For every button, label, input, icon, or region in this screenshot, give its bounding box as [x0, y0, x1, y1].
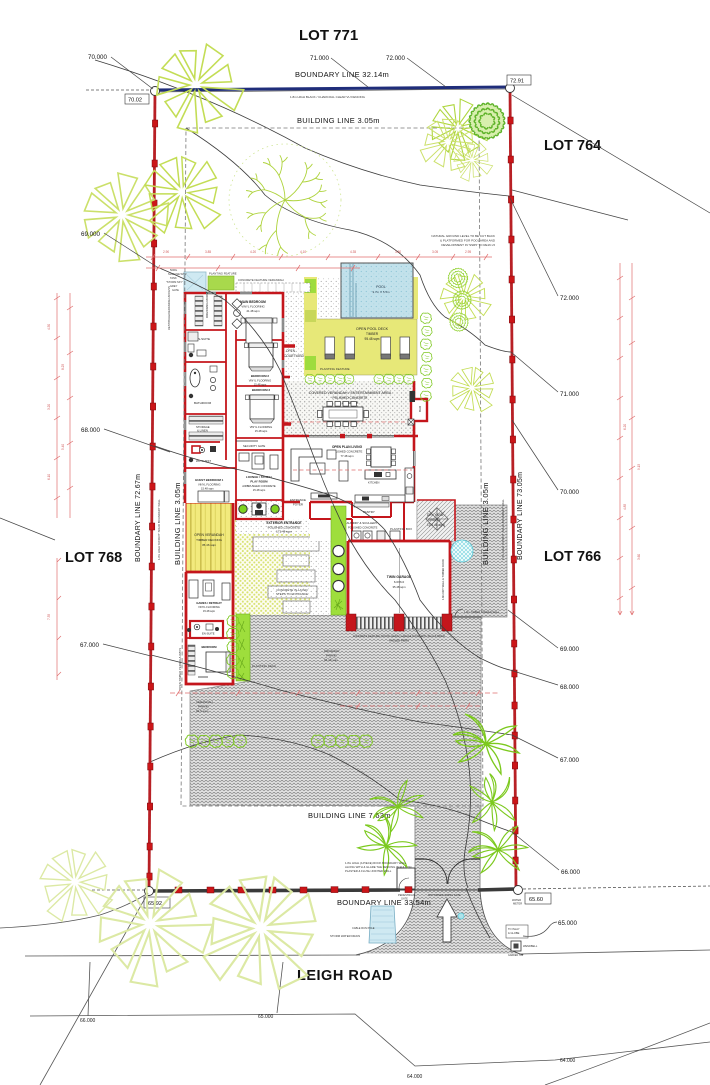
svg-text:VINYL FLOORING: VINYL FLOORING — [249, 379, 271, 383]
svg-text:VERANDAH: VERANDAH — [196, 700, 213, 704]
svg-text:MAIN BEDROOM: MAIN BEDROOM — [240, 300, 266, 304]
svg-text:VINYL FLOORING: VINYL FLOORING — [198, 605, 220, 609]
svg-text:2.95: 2.95 — [465, 250, 471, 254]
svg-text:72.91: 72.91 — [510, 79, 524, 85]
svg-text:68.000: 68.000 — [560, 684, 579, 691]
svg-text:PLANTING FEATURE: PLANTING FEATURE — [320, 367, 350, 371]
svg-text:66.000: 66.000 — [561, 869, 580, 876]
svg-text:4.85: 4.85 — [623, 504, 627, 510]
svg-text:65.000: 65.000 — [258, 1014, 274, 1020]
svg-text:35.48 sqm: 35.48 sqm — [392, 585, 406, 589]
svg-text:72.000: 72.000 — [560, 295, 579, 302]
svg-text:99.5 sqm: 99.5 sqm — [196, 709, 209, 713]
svg-text:GREY: GREY — [170, 284, 178, 288]
svg-text:95.48 sqm: 95.48 sqm — [365, 337, 380, 341]
svg-text:ANGLED PIERS: ANGLED PIERS — [389, 639, 409, 643]
svg-text:PANTRY: PANTRY — [363, 510, 375, 514]
svg-text:KITCHEN: KITCHEN — [368, 481, 380, 485]
svg-text:15.48 sqm: 15.48 sqm — [255, 429, 268, 433]
svg-text:3.20: 3.20 — [47, 404, 51, 410]
svg-text:& LINEN: & LINEN — [197, 429, 208, 433]
svg-text:AIRBRUSHED CONCRETE: AIRBRUSHED CONCRETE — [242, 484, 276, 488]
svg-text:LOT 771: LOT 771 — [299, 27, 358, 44]
svg-text:STORM WATER DRAIN: STORM WATER DRAIN — [330, 934, 360, 938]
svg-text:9.15: 9.15 — [637, 464, 641, 470]
svg-text:77.48 sqm: 77.48 sqm — [340, 454, 354, 458]
svg-text:7.35: 7.35 — [47, 614, 51, 620]
svg-text:69.000: 69.000 — [560, 646, 579, 653]
svg-text:OPEN VERANDAH: OPEN VERANDAH — [194, 533, 224, 537]
svg-text:VINYL FLOORING: VINYL FLOORING — [250, 425, 272, 429]
svg-text:9.7m X 5.5m: 9.7m X 5.5m — [372, 290, 390, 294]
svg-text:15.48 sqm: 15.48 sqm — [253, 488, 266, 492]
svg-text:1.8m HIGH BLACK / CHARCOAL CLE: 1.8m HIGH BLACK / CHARCOAL CLEAR VU FENC… — [290, 95, 366, 99]
svg-text:1.8m HIGH 'KWIKOT' SOLID BOUND: 1.8m HIGH 'KWIKOT' SOLID BOUNDARY WALL — [501, 499, 505, 560]
svg-text:TO INLAY: TO INLAY — [508, 927, 520, 931]
svg-text:15.48 sqm: 15.48 sqm — [203, 609, 215, 613]
svg-text:8.25: 8.25 — [61, 364, 65, 370]
svg-text:6.10: 6.10 — [47, 474, 51, 480]
svg-text:4.50: 4.50 — [47, 324, 51, 330]
svg-text:BEDROOM 3: BEDROOM 3 — [252, 388, 271, 392]
svg-text:GATE: GATE — [172, 288, 179, 292]
svg-text:65.000: 65.000 — [558, 920, 577, 927]
svg-text:1.8m HIGH 'KWIKOT' SOLID BOUND: 1.8m HIGH 'KWIKOT' SOLID BOUNDARY WALL — [157, 499, 161, 560]
svg-text:PAVING: PAVING — [198, 705, 210, 709]
svg-text:BOUNDARY LINE 73.05m: BOUNDARY LINE 73.05m — [517, 472, 524, 560]
svg-text:BUILDING LINE 3.05m: BUILDING LINE 3.05m — [173, 482, 182, 565]
svg-text:LOT 768: LOT 768 — [65, 550, 122, 566]
svg-text:5.40: 5.40 — [61, 444, 65, 450]
svg-text:21.48 sqm: 21.48 sqm — [246, 309, 260, 313]
svg-text:VINYL FLOORING: VINYL FLOORING — [198, 483, 220, 487]
svg-text:FOYER: FOYER — [293, 503, 303, 507]
svg-text:PLASTER & FLUSH JOINTED WALL: PLASTER & FLUSH JOINTED WALL — [345, 869, 392, 873]
svg-text:69.000: 69.000 — [81, 231, 100, 238]
svg-text:POLISHED CONCRETE: POLISHED CONCRETE — [333, 396, 368, 400]
svg-text:COURTYARD: COURTYARD — [284, 354, 305, 358]
svg-text:64.000: 64.000 — [560, 1058, 576, 1064]
svg-text:3.05: 3.05 — [432, 250, 438, 254]
svg-text:CONCRETE FEATURE (WOOD GRAIN): CONCRETE FEATURE (WOOD GRAIN) GARAGE DOO… — [353, 634, 446, 638]
svg-text:BUILDING LINE 7.63m: BUILDING LINE 7.63m — [308, 811, 391, 820]
svg-text:NATURAL GROUND LEVEL TO BE CUT: NATURAL GROUND LEVEL TO BE CUT BACK — [431, 234, 495, 238]
svg-text:OPEN PLAN LIVING: OPEN PLAN LIVING — [332, 445, 363, 449]
svg-text:PLANTING BOX: PLANTING BOX — [390, 527, 412, 531]
svg-text:DEVELOPMENT IN 'SSR5' TO RE16: DEVELOPMENT IN 'SSR5' TO RE16 L5 — [441, 243, 495, 247]
svg-text:STEPS TO ENTRANCE: STEPS TO ENTRANCE — [276, 592, 308, 596]
svg-text:65.60: 65.60 — [529, 897, 543, 903]
svg-text:GAMES / RETREAT: GAMES / RETREAT — [196, 601, 222, 605]
svg-text:4.35: 4.35 — [350, 250, 356, 254]
svg-text:3.60: 3.60 — [637, 554, 641, 560]
svg-text:OPEN: OPEN — [286, 349, 296, 353]
svg-text:PLAY ROOM: PLAY ROOM — [250, 480, 268, 484]
svg-text:PEDESTRIAN: PEDESTRIAN — [398, 893, 415, 897]
svg-text:LOT 766: LOT 766 — [544, 549, 601, 565]
svg-text:WENDBELL: WENDBELL — [523, 944, 538, 948]
svg-text:POOL: POOL — [376, 285, 386, 289]
svg-text:TANK: TANK — [170, 276, 177, 280]
svg-text:VINYL FLOORING: VINYL FLOORING — [241, 305, 264, 309]
svg-text:MOTORISED SWING GATE: MOTORISED SWING GATE — [428, 893, 461, 897]
svg-text:BOUNDARY LINE 32.14m: BOUNDARY LINE 32.14m — [295, 70, 389, 79]
svg-text:COVERED VERANDAH / ENTERTAINME: COVERED VERANDAH / ENTERTAINMENT AREA — [309, 391, 392, 395]
svg-text:15.48 sqm: 15.48 sqm — [254, 383, 267, 387]
svg-text:67.000: 67.000 — [560, 757, 579, 764]
svg-text:METER: METER — [513, 902, 522, 906]
svg-text:GUEST BEDROOM 1: GUEST BEDROOM 1 — [195, 478, 224, 482]
svg-text:3.85: 3.85 — [205, 250, 211, 254]
svg-text:DRESSING ROOM: DRESSING ROOM — [205, 292, 209, 318]
svg-text:64.000: 64.000 — [407, 1074, 423, 1080]
svg-text:70.000: 70.000 — [560, 489, 579, 496]
svg-text:71.000: 71.000 — [310, 55, 329, 62]
svg-text:71.000: 71.000 — [560, 391, 579, 398]
svg-text:"STORM SKY": "STORM SKY" — [166, 280, 183, 284]
svg-text:CABLE RUN POLE: CABLE RUN POLE — [352, 926, 375, 930]
svg-text:PAVING: PAVING — [326, 654, 338, 658]
svg-text:BUILDING LINE 3.05m: BUILDING LINE 3.05m — [297, 116, 380, 125]
svg-text:POLISHED CONCRETE: POLISHED CONCRETE — [348, 526, 378, 530]
svg-text:6.0X6.0: 6.0X6.0 — [394, 580, 405, 584]
svg-text:VESTIBULE/VERANDAH ACCESS: VESTIBULE/VERANDAH ACCESS — [167, 286, 171, 330]
svg-text:BUILDING LINE 3.05m: BUILDING LINE 3.05m — [481, 482, 490, 565]
svg-text:TWIN GARAGE: TWIN GARAGE — [387, 575, 412, 579]
svg-text:35.46 sqm: 35.46 sqm — [202, 543, 217, 547]
svg-text:DRIVEWAY: DRIVEWAY — [324, 649, 340, 653]
svg-text:70.000: 70.000 — [88, 54, 107, 61]
svg-text:BEDROOM 2: BEDROOM 2 — [251, 374, 270, 378]
svg-text:& GLOBE: & GLOBE — [508, 931, 520, 935]
svg-text:BEDROOM: BEDROOM — [201, 645, 217, 649]
svg-text:TIMBER DECKING: TIMBER DECKING — [196, 538, 223, 542]
svg-text:OPEN TIMBER PERGOLA WAYS: OPEN TIMBER PERGOLA WAYS — [178, 648, 182, 690]
svg-text:LEIGH ROAD: LEIGH ROAD — [297, 968, 393, 984]
svg-text:3.50: 3.50 — [395, 250, 401, 254]
svg-text:5000L: 5000L — [170, 268, 178, 272]
svg-text:68.000: 68.000 — [81, 427, 100, 434]
svg-text:GATE: GATE — [401, 897, 408, 901]
svg-text:SECURITY GATE: SECURITY GATE — [243, 444, 265, 448]
svg-text:BATHROOM: BATHROOM — [194, 401, 212, 405]
svg-text:171.48 sqm: 171.48 sqm — [276, 530, 292, 534]
svg-text:EXTERIOR ENTRANCE: EXTERIOR ENTRANCE — [267, 521, 302, 525]
svg-text:70.02: 70.02 — [128, 98, 142, 104]
svg-text:4.20: 4.20 — [250, 250, 256, 254]
svg-text:WATER: WATER — [512, 898, 521, 902]
svg-text:2.90: 2.90 — [163, 250, 169, 254]
svg-text:6.20: 6.20 — [623, 424, 627, 430]
svg-text:LAUNDRY & SCULLERY: LAUNDRY & SCULLERY — [345, 521, 378, 525]
svg-text:95.48 sqm: 95.48 sqm — [324, 658, 339, 662]
svg-text:OPEN POOL DECK: OPEN POOL DECK — [356, 327, 389, 331]
svg-text:72.000: 72.000 — [386, 55, 405, 62]
svg-text:PLANTING FEATURE: PLANTING FEATURE — [209, 272, 237, 276]
svg-text:& PLATFORMED FOR POOL AREA AND: & PLATFORMED FOR POOL AREA AND — [440, 239, 496, 243]
svg-text:CONCRETE FEATURE VERANDAH: CONCRETE FEATURE VERANDAH — [238, 278, 284, 282]
svg-text:1.8m DRY WALL & TIMBER DOOR: 1.8m DRY WALL & TIMBER DOOR — [441, 559, 445, 600]
svg-text:ENTRANCE: ENTRANCE — [290, 498, 306, 502]
svg-text:67.000: 67.000 — [80, 642, 99, 649]
svg-text:15.48 sqm: 15.48 sqm — [201, 487, 214, 491]
svg-text:PLANTING DECK: PLANTING DECK — [252, 664, 276, 668]
svg-text:EN-SUITE: EN-SUITE — [202, 632, 215, 636]
svg-text:GARDEN TAP: GARDEN TAP — [508, 954, 524, 957]
svg-text:LOT 764: LOT 764 — [544, 138, 601, 154]
svg-text:BAR: BAR — [418, 405, 422, 412]
svg-text:TIMBER: TIMBER — [366, 332, 379, 336]
svg-text:BOUNDARY LINE 72.67m: BOUNDARY LINE 72.67m — [135, 474, 142, 562]
svg-text:66.000: 66.000 — [80, 1018, 96, 1024]
svg-text:4.10: 4.10 — [300, 250, 306, 254]
